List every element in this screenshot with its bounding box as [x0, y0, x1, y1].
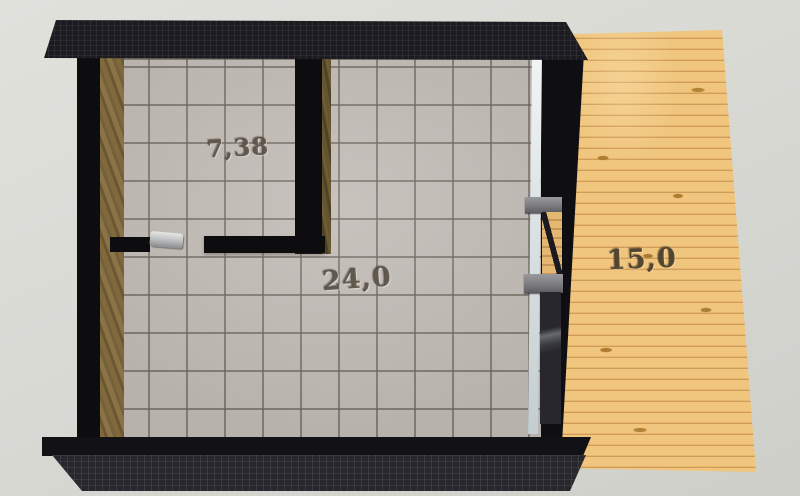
terrace-area-label: 15,0 [599, 243, 684, 277]
roof-overhang-bottom [46, 455, 588, 492]
partition-wall-wood-face [322, 54, 331, 254]
partition-wall-horizontal-right [204, 236, 325, 253]
south-wall-band [42, 437, 591, 456]
door-frame-beam-top [525, 197, 562, 213]
interior-door-leaf [149, 231, 183, 249]
floor-plan-scene: 7,38 24,0 15,0 [0, 0, 800, 496]
partition-wall-vertical [295, 52, 322, 254]
partition-wall-horizontal-left [110, 237, 150, 252]
west-wall [77, 36, 100, 458]
main-room-area-label: 24,0 [311, 261, 403, 298]
roof-overhang-top [42, 18, 588, 61]
terrace-doorway-opening [542, 212, 562, 278]
door-frame-beam-bottom [524, 274, 563, 293]
exterior-door-panel [540, 292, 561, 424]
small-room-area-label: 7,38 [197, 131, 278, 164]
